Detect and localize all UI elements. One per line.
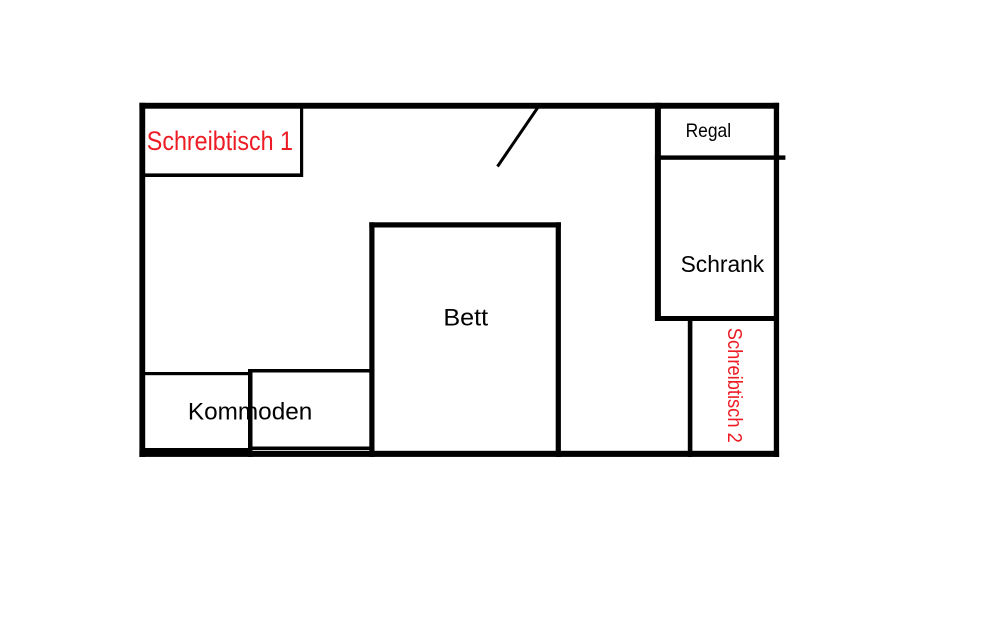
svg-text:Bett: Bett	[443, 304, 488, 331]
svg-text:Schreibtisch 1: Schreibtisch 1	[147, 126, 293, 156]
svg-text:Kommoden: Kommoden	[188, 398, 312, 425]
svg-text:Schrank: Schrank	[681, 251, 765, 277]
svg-text:Schreibtisch 2: Schreibtisch 2	[723, 328, 746, 443]
svg-text:Regal: Regal	[686, 120, 732, 142]
